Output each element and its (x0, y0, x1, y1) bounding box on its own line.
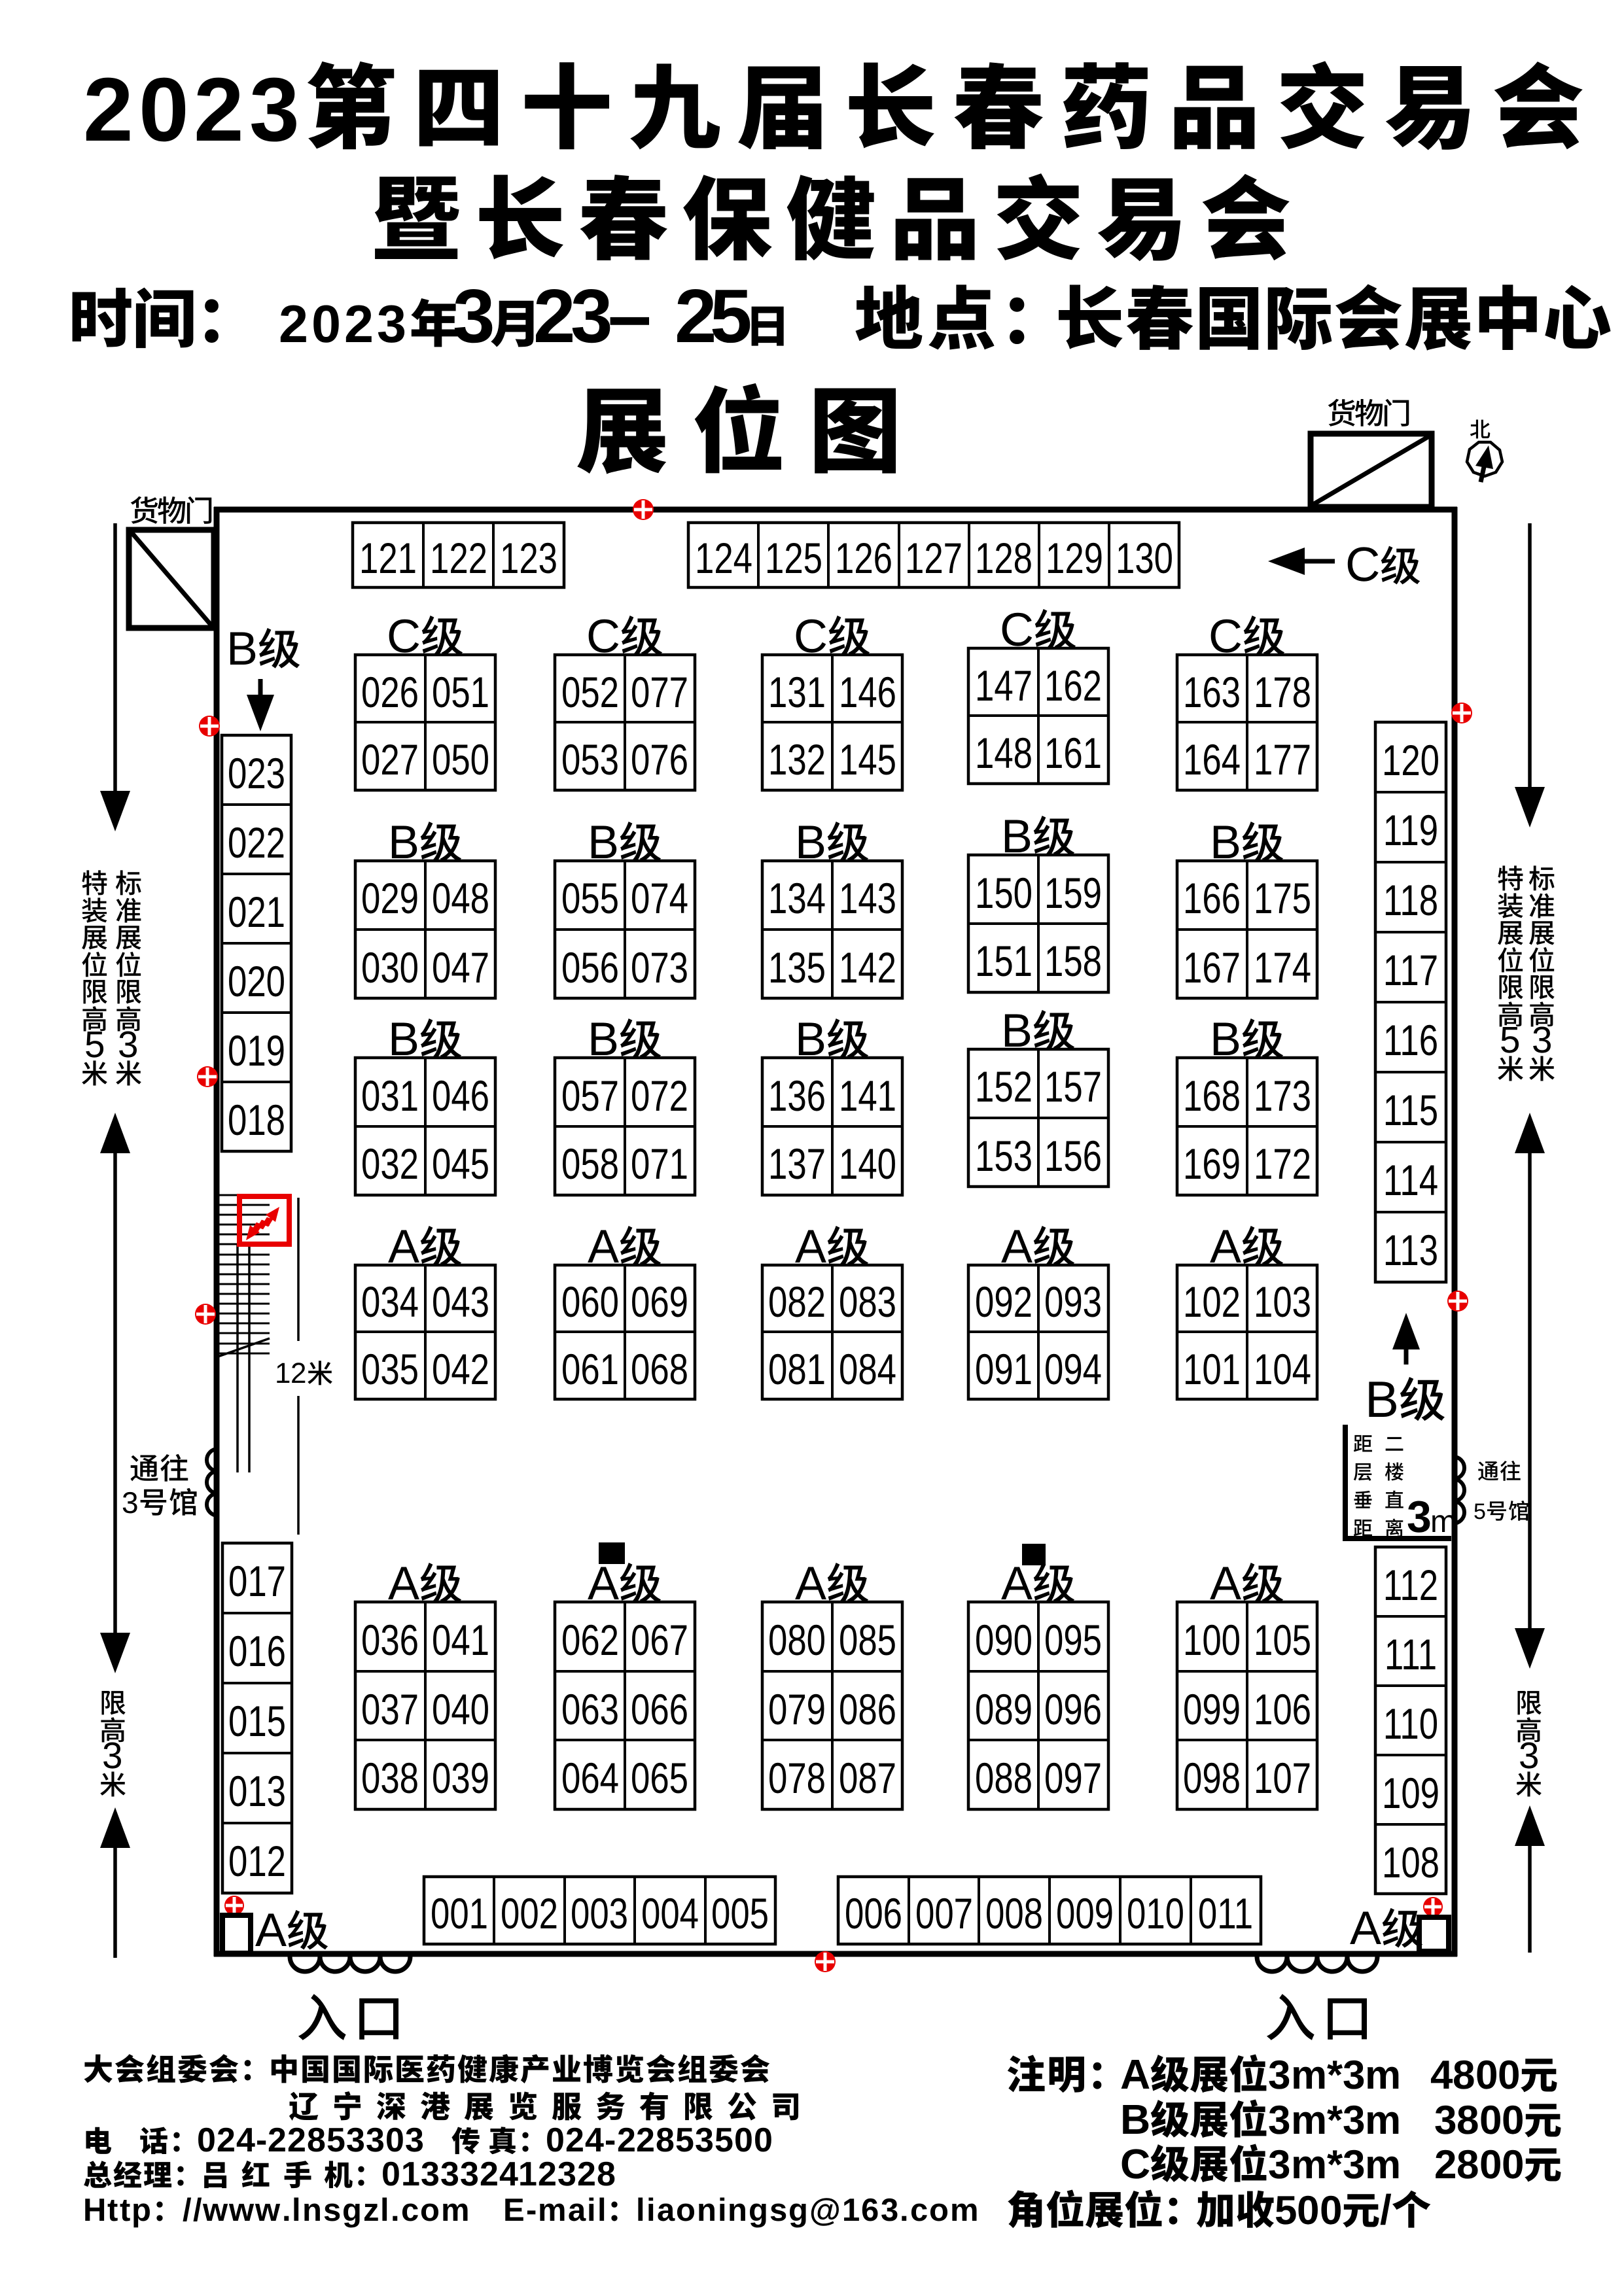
svg-text:134: 134 (768, 874, 826, 922)
svg-text:050: 050 (432, 735, 489, 784)
svg-text:045: 045 (432, 1139, 489, 1188)
svg-text:151: 151 (975, 937, 1033, 985)
svg-text:037: 037 (361, 1685, 419, 1733)
svg-text:107: 107 (1254, 1754, 1311, 1802)
svg-text:094: 094 (1044, 1345, 1102, 1393)
svg-text:163: 163 (1183, 668, 1241, 716)
svg-text:019: 019 (228, 1026, 285, 1075)
svg-text:098: 098 (1183, 1754, 1241, 1802)
svg-text:146: 146 (839, 668, 896, 716)
svg-text:174: 174 (1254, 943, 1311, 992)
svg-text:026: 026 (361, 668, 419, 716)
svg-text:062: 062 (561, 1616, 619, 1664)
svg-text:150: 150 (975, 869, 1033, 917)
svg-text:068: 068 (631, 1345, 688, 1393)
svg-text:023: 023 (228, 749, 285, 797)
svg-text:016: 016 (228, 1627, 286, 1675)
svg-text:035: 035 (361, 1345, 419, 1393)
svg-text:005: 005 (711, 1889, 769, 1938)
svg-text:135: 135 (768, 943, 826, 992)
svg-text:117: 117 (1383, 946, 1438, 994)
svg-text:123: 123 (500, 534, 557, 582)
svg-text:018: 018 (228, 1096, 285, 1144)
svg-text:126: 126 (835, 534, 892, 582)
svg-text:057: 057 (561, 1071, 619, 1120)
svg-text:063: 063 (561, 1685, 619, 1733)
svg-text:086: 086 (839, 1685, 896, 1733)
svg-text:128: 128 (975, 534, 1033, 582)
svg-text:056: 056 (561, 943, 619, 992)
svg-text:011: 011 (1198, 1889, 1253, 1938)
svg-text:042: 042 (432, 1345, 489, 1393)
svg-text:001: 001 (431, 1889, 488, 1938)
svg-text:104: 104 (1254, 1345, 1311, 1393)
svg-text:061: 061 (561, 1345, 619, 1393)
svg-text:036: 036 (361, 1616, 419, 1664)
svg-text:013: 013 (228, 1767, 286, 1815)
svg-text:060: 060 (561, 1278, 619, 1326)
svg-text:099: 099 (1183, 1685, 1241, 1733)
svg-text:105: 105 (1254, 1616, 1311, 1664)
svg-text:136: 136 (768, 1071, 826, 1120)
svg-text:083: 083 (839, 1278, 896, 1326)
svg-text:002: 002 (501, 1889, 558, 1938)
svg-text:090: 090 (975, 1616, 1033, 1664)
svg-text:161: 161 (1044, 729, 1102, 777)
svg-text:087: 087 (839, 1754, 896, 1802)
svg-text:004: 004 (641, 1889, 699, 1938)
svg-text:078: 078 (768, 1754, 826, 1802)
svg-text:142: 142 (839, 943, 896, 992)
svg-text:043: 043 (432, 1278, 489, 1326)
svg-text:096: 096 (1044, 1685, 1102, 1733)
svg-text:017: 017 (228, 1557, 286, 1605)
svg-text:066: 066 (631, 1685, 688, 1733)
svg-text:084: 084 (839, 1345, 896, 1393)
svg-text:082: 082 (768, 1278, 826, 1326)
svg-text:148: 148 (975, 729, 1033, 777)
svg-text:029: 029 (361, 874, 419, 922)
svg-text:097: 097 (1044, 1754, 1102, 1802)
svg-text:071: 071 (631, 1139, 688, 1188)
svg-text:130: 130 (1116, 534, 1173, 582)
svg-text:167: 167 (1183, 943, 1241, 992)
svg-text:132: 132 (768, 735, 826, 784)
svg-text:065: 065 (631, 1754, 688, 1802)
svg-text:085: 085 (839, 1616, 896, 1664)
svg-text:009: 009 (1056, 1889, 1114, 1938)
svg-text:031: 031 (361, 1071, 419, 1120)
svg-text:100: 100 (1183, 1616, 1241, 1664)
svg-text:048: 048 (432, 874, 489, 922)
svg-text:006: 006 (845, 1889, 902, 1938)
svg-text:081: 081 (768, 1345, 826, 1393)
svg-text:030: 030 (361, 943, 419, 992)
svg-text:114: 114 (1383, 1156, 1438, 1204)
svg-text:159: 159 (1044, 869, 1102, 917)
svg-text:093: 093 (1044, 1278, 1102, 1326)
svg-text:118: 118 (1383, 876, 1438, 924)
svg-text:101: 101 (1183, 1345, 1241, 1393)
svg-text:102: 102 (1183, 1278, 1241, 1326)
svg-text:051: 051 (432, 668, 489, 716)
svg-text:113: 113 (1383, 1226, 1438, 1274)
svg-text:039: 039 (432, 1754, 489, 1802)
svg-text:125: 125 (765, 534, 822, 582)
svg-text:120: 120 (1382, 736, 1439, 784)
svg-text:168: 168 (1183, 1071, 1241, 1120)
svg-text:157: 157 (1044, 1062, 1102, 1111)
svg-text:177: 177 (1254, 735, 1311, 784)
svg-text:053: 053 (561, 735, 619, 784)
svg-text:137: 137 (768, 1139, 826, 1188)
svg-text:021: 021 (228, 888, 285, 936)
svg-text:027: 027 (361, 735, 419, 784)
svg-text:074: 074 (631, 874, 688, 922)
svg-text:115: 115 (1383, 1086, 1438, 1134)
svg-text:088: 088 (975, 1754, 1033, 1802)
svg-text:064: 064 (561, 1754, 619, 1802)
svg-text:141: 141 (839, 1071, 896, 1120)
svg-text:106: 106 (1254, 1685, 1311, 1733)
svg-text:145: 145 (839, 735, 896, 784)
svg-text:072: 072 (631, 1071, 688, 1120)
svg-text:119: 119 (1383, 806, 1438, 854)
svg-text:079: 079 (768, 1685, 826, 1733)
svg-text:015: 015 (228, 1697, 286, 1745)
svg-text:166: 166 (1183, 874, 1241, 922)
svg-text:076: 076 (631, 735, 688, 784)
svg-text:121: 121 (359, 534, 417, 582)
svg-text:158: 158 (1044, 937, 1102, 985)
svg-text:140: 140 (839, 1139, 896, 1188)
svg-text:003: 003 (571, 1889, 628, 1938)
svg-text:173: 173 (1254, 1071, 1311, 1120)
svg-text:077: 077 (631, 668, 688, 716)
svg-text:127: 127 (905, 534, 962, 582)
svg-text:152: 152 (975, 1062, 1033, 1111)
svg-text:091: 091 (975, 1345, 1033, 1393)
svg-text:047: 047 (432, 943, 489, 992)
svg-text:032: 032 (361, 1139, 419, 1188)
svg-text:131: 131 (768, 668, 826, 716)
svg-text:116: 116 (1383, 1016, 1438, 1064)
svg-text:109: 109 (1382, 1769, 1439, 1817)
svg-text:040: 040 (432, 1685, 489, 1733)
svg-text:067: 067 (631, 1616, 688, 1664)
svg-text:103: 103 (1254, 1278, 1311, 1326)
svg-text:129: 129 (1046, 534, 1103, 582)
svg-text:124: 124 (695, 534, 752, 582)
svg-text:143: 143 (839, 874, 896, 922)
svg-text:041: 041 (432, 1616, 489, 1664)
svg-text:147: 147 (975, 661, 1033, 710)
svg-text:012: 012 (228, 1837, 286, 1885)
svg-text:122: 122 (430, 534, 487, 582)
svg-text:038: 038 (361, 1754, 419, 1802)
svg-text:156: 156 (1044, 1132, 1102, 1180)
svg-text:022: 022 (228, 818, 285, 867)
svg-text:055: 055 (561, 874, 619, 922)
svg-text:162: 162 (1044, 661, 1102, 710)
svg-text:052: 052 (561, 668, 619, 716)
svg-text:111: 111 (1385, 1630, 1437, 1679)
svg-text:020: 020 (228, 957, 285, 1005)
svg-text:010: 010 (1127, 1889, 1184, 1938)
svg-text:153: 153 (975, 1132, 1033, 1180)
svg-text:080: 080 (768, 1616, 826, 1664)
svg-text:108: 108 (1382, 1838, 1439, 1887)
svg-text:110: 110 (1383, 1699, 1438, 1748)
svg-text:169: 169 (1183, 1139, 1241, 1188)
svg-text:164: 164 (1183, 735, 1241, 784)
svg-text:069: 069 (631, 1278, 688, 1326)
svg-text:007: 007 (915, 1889, 973, 1938)
svg-text:172: 172 (1254, 1139, 1311, 1188)
svg-text:112: 112 (1383, 1561, 1438, 1609)
svg-text:175: 175 (1254, 874, 1311, 922)
svg-text:058: 058 (561, 1139, 619, 1188)
svg-text:046: 046 (432, 1071, 489, 1120)
svg-text:034: 034 (361, 1278, 419, 1326)
svg-text:089: 089 (975, 1685, 1033, 1733)
svg-text:092: 092 (975, 1278, 1033, 1326)
svg-text:178: 178 (1254, 668, 1311, 716)
svg-text:073: 073 (631, 943, 688, 992)
svg-text:095: 095 (1044, 1616, 1102, 1664)
svg-text:008: 008 (985, 1889, 1043, 1938)
